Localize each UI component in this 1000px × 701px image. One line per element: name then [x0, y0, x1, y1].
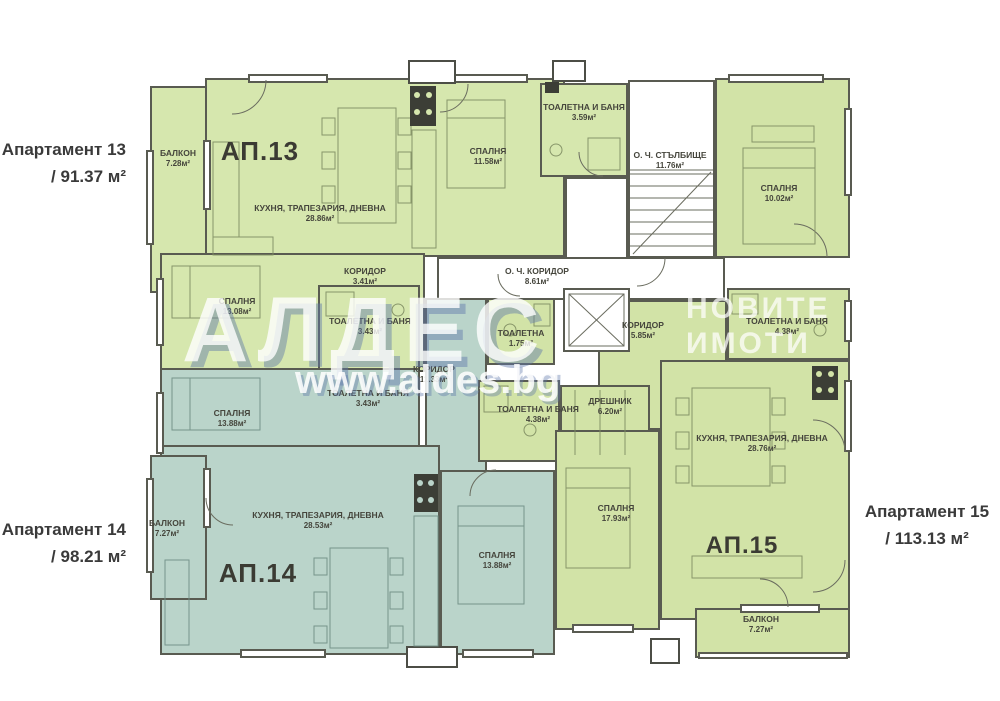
annotation-ap15: Апартамент 15/ 113.13 м² — [860, 498, 994, 552]
label-ap15-balcony: БАЛКОН7.27м² — [743, 614, 779, 635]
label-ap13-balcony: БАЛКОН7.28м² — [160, 148, 196, 169]
room-ap13-living — [205, 78, 565, 257]
service-shaft — [552, 60, 586, 82]
window — [146, 150, 154, 245]
service-shaft — [408, 60, 456, 84]
label-ap15-living: КУХНЯ, ТРАПЕЗАРИЯ, ДНЕВНА28.76м² — [696, 433, 828, 454]
window — [203, 468, 211, 528]
room-common-hall — [565, 177, 628, 260]
watermark-tagline: НОВИТЕИМОТИ — [686, 292, 831, 361]
window — [240, 649, 326, 658]
service-shaft — [650, 638, 680, 664]
label-ap15-closet: ДРЕШНИК6.20м² — [588, 396, 631, 417]
room-ap15-bedroom2 — [555, 430, 660, 630]
window — [844, 300, 852, 342]
window — [203, 140, 211, 210]
window — [156, 278, 164, 346]
unit-label-ap14: АП.14 — [219, 558, 297, 589]
label-ap15-bedroom1: СПАЛНЯ10.02м² — [761, 183, 798, 204]
window — [740, 604, 820, 613]
room-ap13-bath1 — [540, 83, 628, 177]
label-ap14-bedroom2: СПАЛНЯ13.88м² — [479, 550, 516, 571]
label-common-stairs: О. Ч. СТЪЛБИЩЕ11.76м² — [633, 150, 706, 171]
room-ap15-bedroom1 — [715, 78, 850, 258]
window — [156, 392, 164, 454]
floor-plan: АП.13 АП.14 АП.15 БАЛКОН7.28м² КУХНЯ, ТР… — [0, 0, 1000, 701]
label-ap13-bath1: ТОАЛЕТНА И БАНЯ3.59м² — [543, 102, 625, 123]
service-shaft — [406, 646, 458, 668]
window — [698, 652, 848, 659]
label-ap13-bedroom1: СПАЛНЯ11.58м² — [470, 146, 507, 167]
window — [844, 108, 852, 196]
label-ap15-bath2: ТОАЛЕТНА И БАНЯ4.38м² — [497, 404, 579, 425]
annotation-ap13: Апартамент 13/ 91.37 м² — [0, 136, 126, 190]
window — [462, 649, 534, 658]
label-ap13-living: КУХНЯ, ТРАПЕЗАРИЯ, ДНЕВНА28.86м² — [254, 203, 386, 224]
label-ap15-corridor: КОРИДОР5.85м² — [622, 320, 664, 341]
window — [572, 624, 634, 633]
label-ap15-bedroom2: СПАЛНЯ17.93м² — [598, 503, 635, 524]
annotation-ap14: Апартамент 14/ 98.21 м² — [0, 516, 126, 570]
room-ap15-living — [660, 360, 850, 620]
unit-label-ap13: АП.13 — [221, 136, 299, 167]
watermark-url: www.aldes.bg — [295, 358, 560, 403]
elevator-shaft — [563, 288, 630, 352]
unit-label-ap15: АП.15 — [706, 532, 779, 560]
window — [844, 380, 852, 452]
window — [452, 74, 528, 83]
window — [728, 74, 824, 83]
label-ap14-bedroom1: СПАЛНЯ13.88м² — [214, 408, 251, 429]
label-ap14-balcony: БАЛКОН7.27м² — [149, 518, 185, 539]
label-ap14-living: КУХНЯ, ТРАПЕЗАРИЯ, ДНЕВНА28.53м² — [252, 510, 384, 531]
window — [248, 74, 328, 83]
